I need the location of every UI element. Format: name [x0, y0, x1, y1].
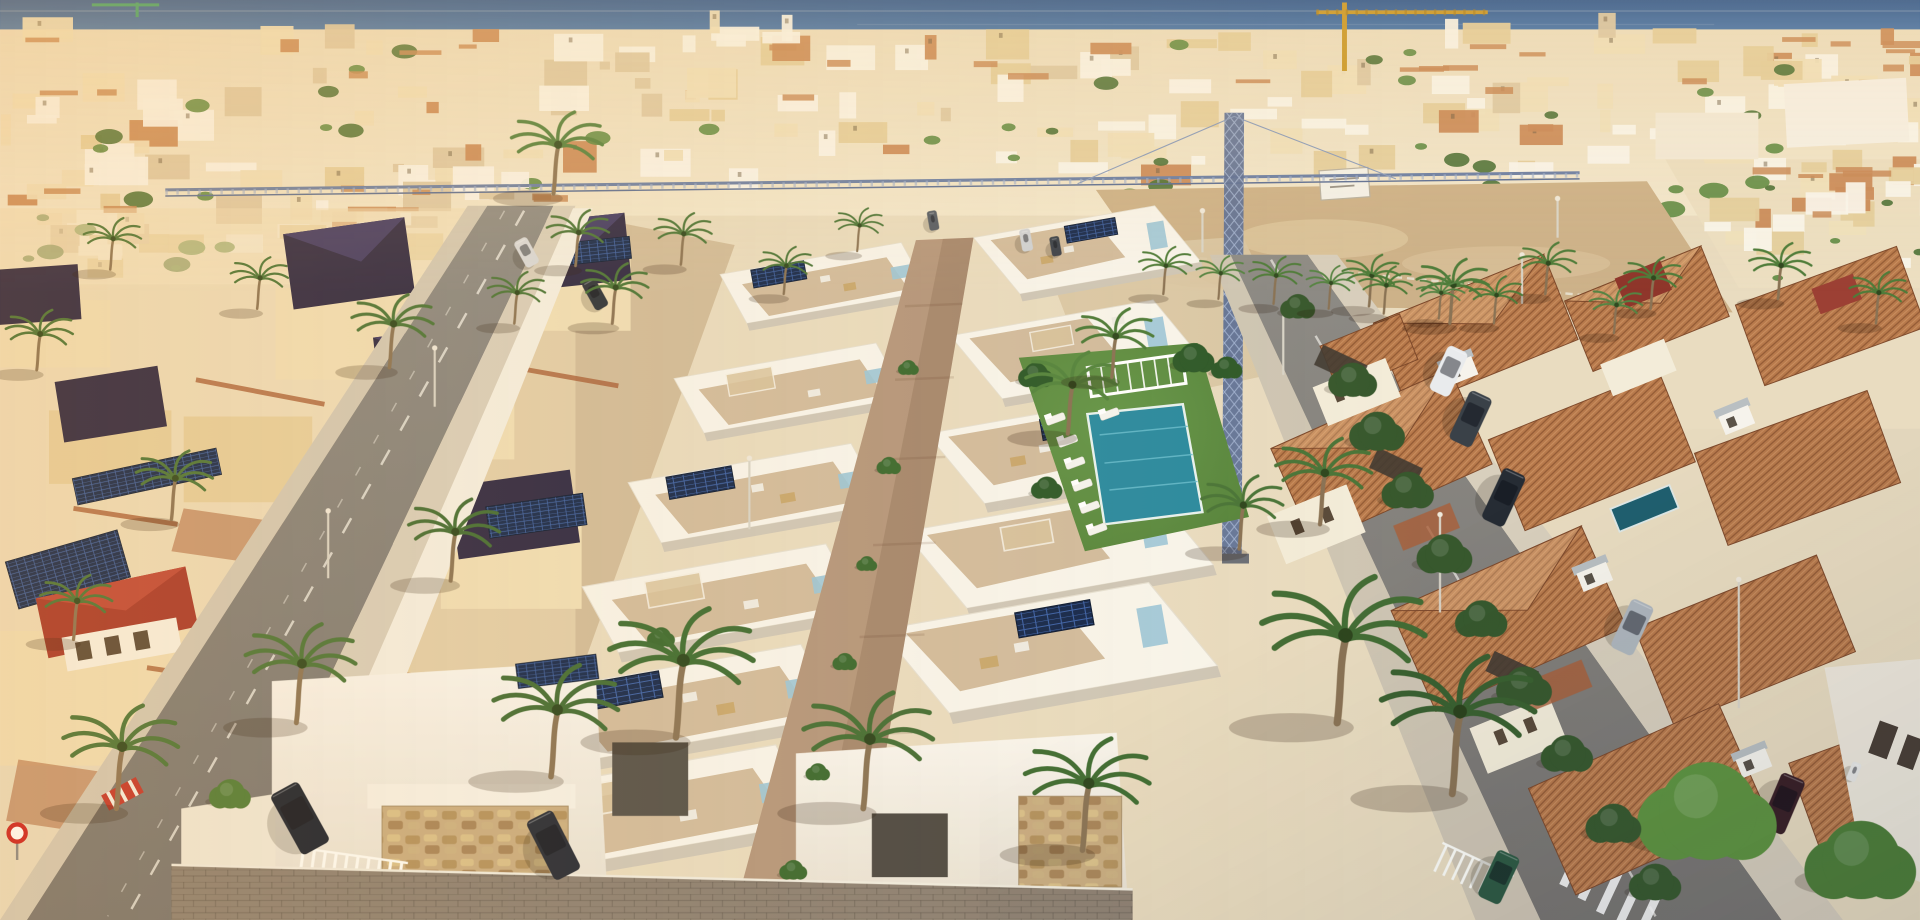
aerial-photo: [0, 0, 1920, 920]
light-overlays: [0, 0, 1920, 920]
scene-canvas: [0, 0, 1920, 920]
